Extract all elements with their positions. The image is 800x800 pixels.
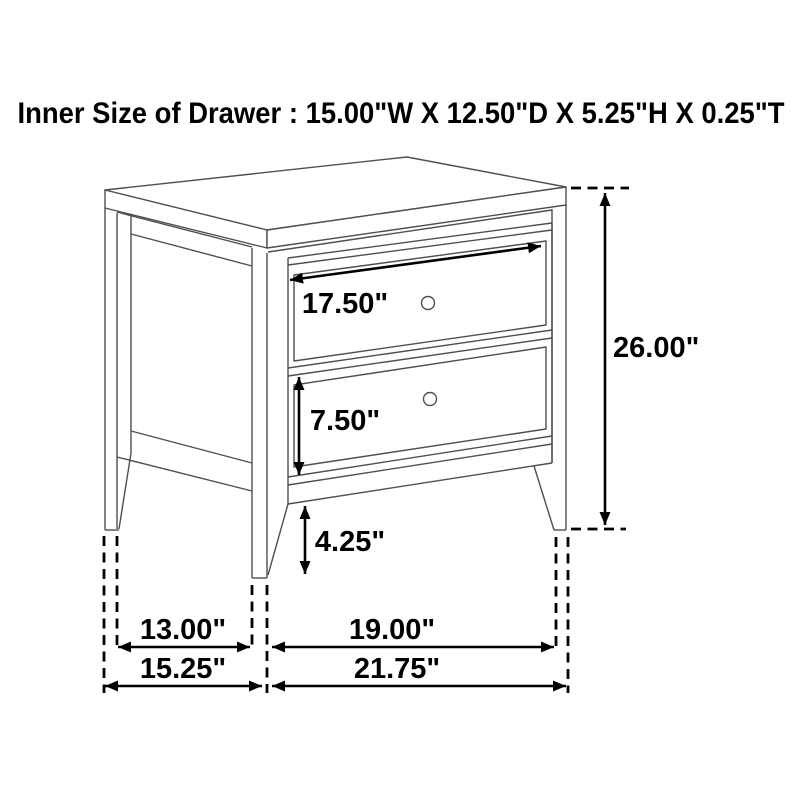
page-title: Inner Size of Drawer : 15.00"W X 12.50"D… bbox=[18, 97, 785, 130]
side-inner-label: 13.00" bbox=[140, 614, 226, 646]
leg-height-label: 4.25" bbox=[315, 526, 385, 558]
drawer-width-label: 17.50" bbox=[302, 288, 388, 320]
side-overall-label: 15.25" bbox=[140, 653, 226, 685]
front-inner-label: 19.00" bbox=[349, 614, 435, 646]
overall-height-label: 26.00" bbox=[613, 332, 699, 364]
drawer-face-height-label: 7.50" bbox=[310, 405, 380, 437]
nightstand-dimension-diagram: Inner Size of Drawer : 15.00"W X 12.50"D… bbox=[0, 0, 800, 800]
diagram-page: Inner Size of Drawer : 15.00"W X 12.50"D… bbox=[0, 0, 800, 800]
front-overall-label: 21.75" bbox=[354, 653, 440, 685]
